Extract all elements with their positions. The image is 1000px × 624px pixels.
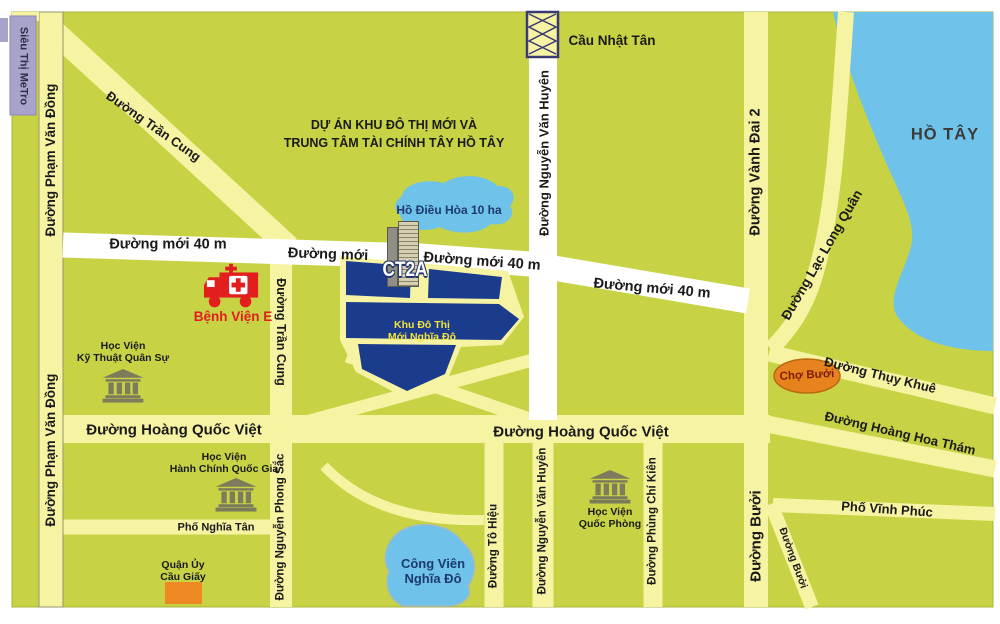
cong-vien-line2: Nghĩa Đô (401, 572, 465, 587)
ho-tay-label: HỒ TÂY (911, 126, 979, 145)
hv-qp-line2: Quốc Phòng (579, 518, 641, 530)
hv-hcqg-label: Học Viện Hành Chính Quốc Gia (170, 451, 279, 475)
project-title: DỰ ÁN KHU ĐÔ THỊ MỚI VÀ TRUNG TÂM TÀI CH… (284, 116, 505, 152)
ct2a-label: CT2A (383, 258, 428, 282)
hv-ktqs-label: Học Viện Kỹ Thuật Quân Sự (77, 340, 169, 364)
institution-icon-ktqs (101, 368, 145, 408)
bridge-icon (527, 12, 558, 57)
quan-uy-label: Quận Ủy Cầu Giấy (160, 559, 206, 583)
road-label-vanh-dai-2: Đường Vành Đai 2 (748, 108, 765, 235)
cong-vien-line1: Công Viên (401, 557, 465, 572)
city-map: Siêu Thị MeTro Đường Phạm Văn Đồng Đường… (0, 0, 1000, 624)
road-label-nghia-tan: Phố Nghĩa Tân (178, 522, 255, 535)
road-label-duong-moi-40m-1: Đường mới 40 m (109, 237, 226, 254)
khu-do-thi-line2: Mới Nghĩa Đô (388, 331, 456, 343)
hv-hcqg-line1: Học Viện (170, 451, 279, 463)
institution-icon-qp (588, 469, 632, 509)
road-label-nguyen-van-huyen-north: Đường Nguyễn Văn Huyên (538, 70, 553, 236)
quan-uy-line1: Quận Ủy (160, 559, 206, 571)
project-title-line1: DỰ ÁN KHU ĐÔ THỊ MỚI VÀ (284, 116, 505, 134)
hv-qp-line1: Học Viện (579, 506, 641, 518)
road-label-nguyen-phong-sac: Đường Nguyễn Phong Sắc (274, 454, 287, 601)
road-label-hoang-quoc-viet-west: Đường Hoàng Quốc Việt (86, 421, 261, 438)
khu-do-thi-line1: Khu Đô Thị (388, 319, 456, 331)
road-label-hoang-quoc-viet-east: Đường Hoàng Quốc Việt (493, 423, 668, 440)
khu-do-thi-label: Khu Đô Thị Mới Nghĩa Đô (388, 319, 456, 343)
metro-edge-marker (0, 18, 8, 42)
quan-uy-block (165, 582, 202, 604)
hv-ktqs-line2: Kỹ Thuật Quân Sự (77, 352, 169, 364)
ambulance-icon (203, 263, 261, 314)
hv-qp-label: Học Viện Quốc Phòng (579, 506, 641, 530)
road-label-duong-moi: Đường mới (288, 245, 369, 264)
road-label-buoi-main: Đường Bưởi (747, 490, 764, 581)
metro-label: Siêu Thị MeTro (17, 27, 30, 105)
road-label-to-hieu: Đường Tô Hiệu (487, 504, 500, 588)
road-label-pham-van-dong-south: Đường Phạm Văn Đồng (43, 374, 59, 527)
institution-icon-hcqg (214, 477, 258, 517)
quan-uy-line2: Cầu Giấy (160, 571, 206, 583)
road-label-pham-van-dong-north: Đường Phạm Văn Đồng (43, 84, 59, 237)
road-label-phung-chi-kien: Đường Phùng Chí Kiên (646, 457, 659, 585)
road-label-tran-cung-vertical: Đường Trần Cung (274, 278, 288, 386)
cau-nhat-tan-label: Cầu Nhật Tân (568, 33, 655, 49)
project-title-line2: TRUNG TÂM TÀI CHÍNH TÂY HỒ TÂY (284, 134, 505, 152)
road-label-nguyen-van-huyen-south: Đường Nguyễn Văn Huyên (536, 448, 549, 595)
hv-hcqg-line2: Hành Chính Quốc Gia (170, 463, 279, 475)
ho-dieu-hoa-label: Hồ Điều Hòa 10 ha (396, 204, 501, 218)
hv-ktqs-line1: Học Viện (77, 340, 169, 352)
benh-vien-e-label: Bệnh Viện E (194, 309, 273, 325)
cong-vien-label: Công Viên Nghĩa Đô (401, 557, 465, 587)
